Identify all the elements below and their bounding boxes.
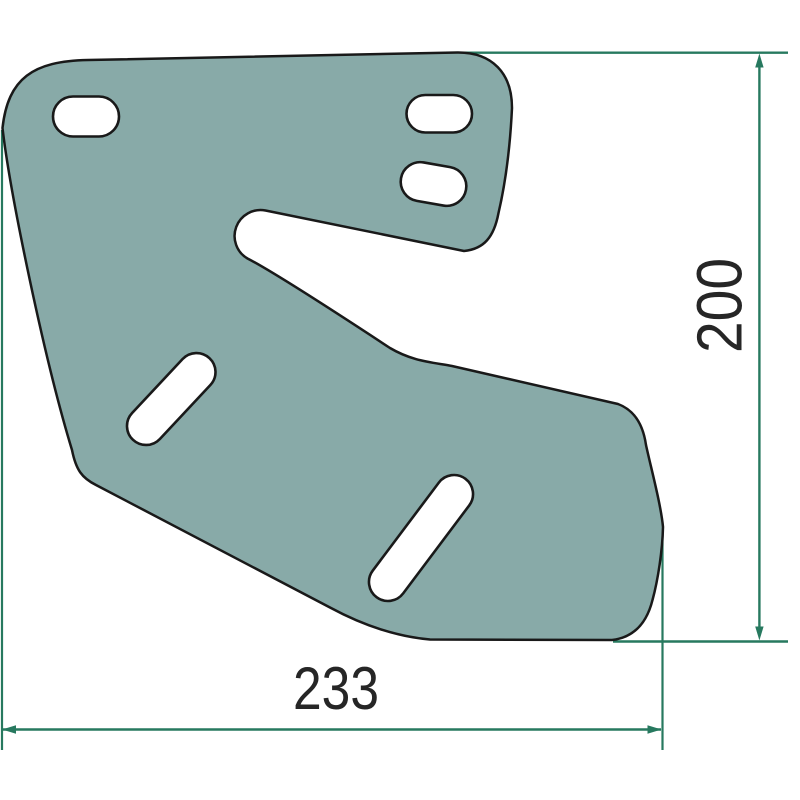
svg-text:200: 200 [684, 258, 756, 353]
svg-text:233: 233 [293, 655, 379, 722]
